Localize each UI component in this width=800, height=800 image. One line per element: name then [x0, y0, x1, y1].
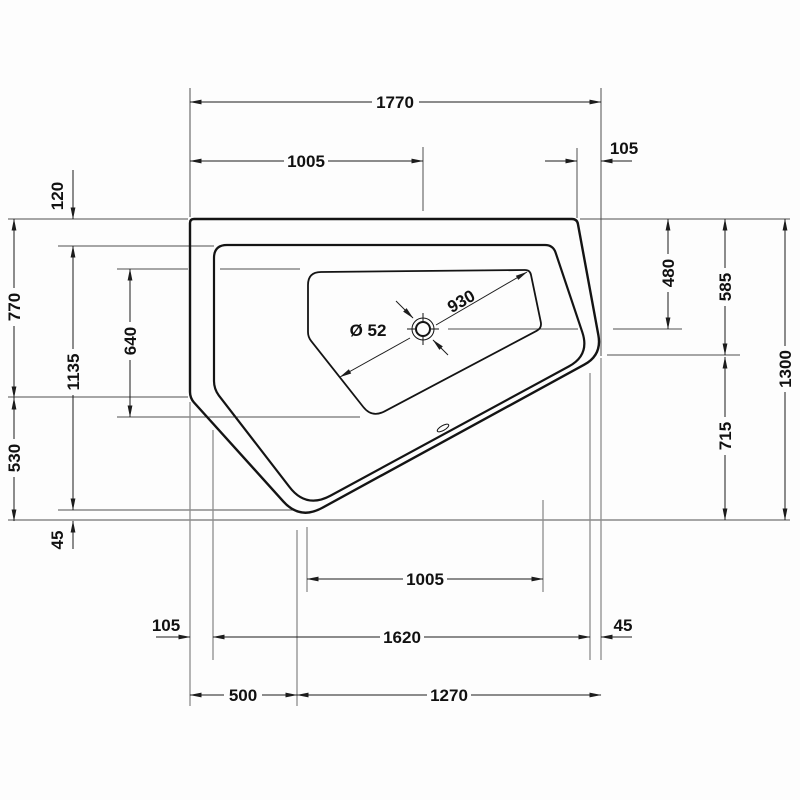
- dim-right-overall: 1300: [776, 219, 795, 520]
- dim-label-right-drain: 480: [659, 259, 678, 287]
- dim-label-top-span: 1005: [287, 152, 325, 171]
- technical-drawing-page: 1770 1005 105 120 770: [0, 0, 800, 800]
- dimension-lines: 1770 1005 105 120 770: [5, 93, 795, 705]
- bathtub-plan-drawing: 1770 1005 105 120 770: [0, 0, 800, 800]
- inner-rim-contour: [214, 245, 584, 501]
- dim-label-top-overall: 1770: [376, 93, 414, 112]
- dim-right-lower: 715: [716, 357, 735, 520]
- dim-left-tip-offset: 45: [48, 521, 73, 549]
- dim-label-right-overall: 1300: [776, 350, 795, 388]
- dim-label-bottom-left: 500: [229, 686, 257, 705]
- dim-label-left-inner: 1135: [64, 354, 83, 391]
- dim-label-left-lower: 530: [5, 444, 24, 472]
- dim-label-bottom-left-offset: 105: [152, 616, 180, 635]
- dim-drain-diameter: Ø 52: [350, 301, 448, 355]
- dim-top-right-offset: 105: [545, 139, 638, 161]
- dim-label-left-basin: 640: [121, 327, 140, 355]
- dim-label-drain-diameter: Ø 52: [350, 321, 387, 340]
- extension-lines-lower: [190, 358, 601, 706]
- dim-label-left-rim: 120: [48, 182, 67, 210]
- dim-top-overall: 1770: [190, 93, 601, 112]
- dim-bottom-left-offset: 105: [152, 616, 190, 637]
- dim-label-left-tip-offset: 45: [48, 531, 67, 550]
- dim-right-upper: 585: [716, 219, 735, 355]
- dim-label-bottom-inner: 1620: [383, 628, 421, 647]
- dim-left-basin: 640: [121, 269, 140, 417]
- dim-bottom-right: 1270: [297, 686, 601, 705]
- dim-right-drain: 480: [659, 219, 678, 329]
- dim-label-left-upper: 770: [5, 293, 24, 321]
- dim-bottom-left: 500: [190, 686, 297, 705]
- dim-left-lower: 530: [5, 398, 24, 521]
- dim-label-right-upper: 585: [716, 273, 735, 301]
- dim-left-upper: 770: [5, 219, 24, 398]
- dim-label-bottom-span: 1005: [406, 570, 444, 589]
- dim-label-basin-diagonal: 930: [444, 286, 478, 317]
- dim-label-top-right-offset: 105: [610, 139, 638, 158]
- outer-rim-contour: [190, 219, 599, 513]
- dim-label-bottom-right: 1270: [430, 686, 468, 705]
- dim-bottom-inner: 1620: [213, 628, 590, 647]
- dim-label-bottom-right-offset: 45: [614, 616, 633, 635]
- basin-contour: [308, 270, 541, 414]
- dim-top-span: 1005: [190, 152, 423, 171]
- dim-bottom-right-offset: 45: [601, 616, 632, 637]
- drain-symbol: [407, 313, 439, 345]
- dim-bottom-span: 1005: [307, 570, 543, 589]
- dim-left-rim: 120: [48, 170, 73, 219]
- dim-label-right-lower: 715: [716, 422, 735, 450]
- dim-left-inner: 1135: [64, 246, 83, 510]
- bathtub-outline: [190, 219, 599, 513]
